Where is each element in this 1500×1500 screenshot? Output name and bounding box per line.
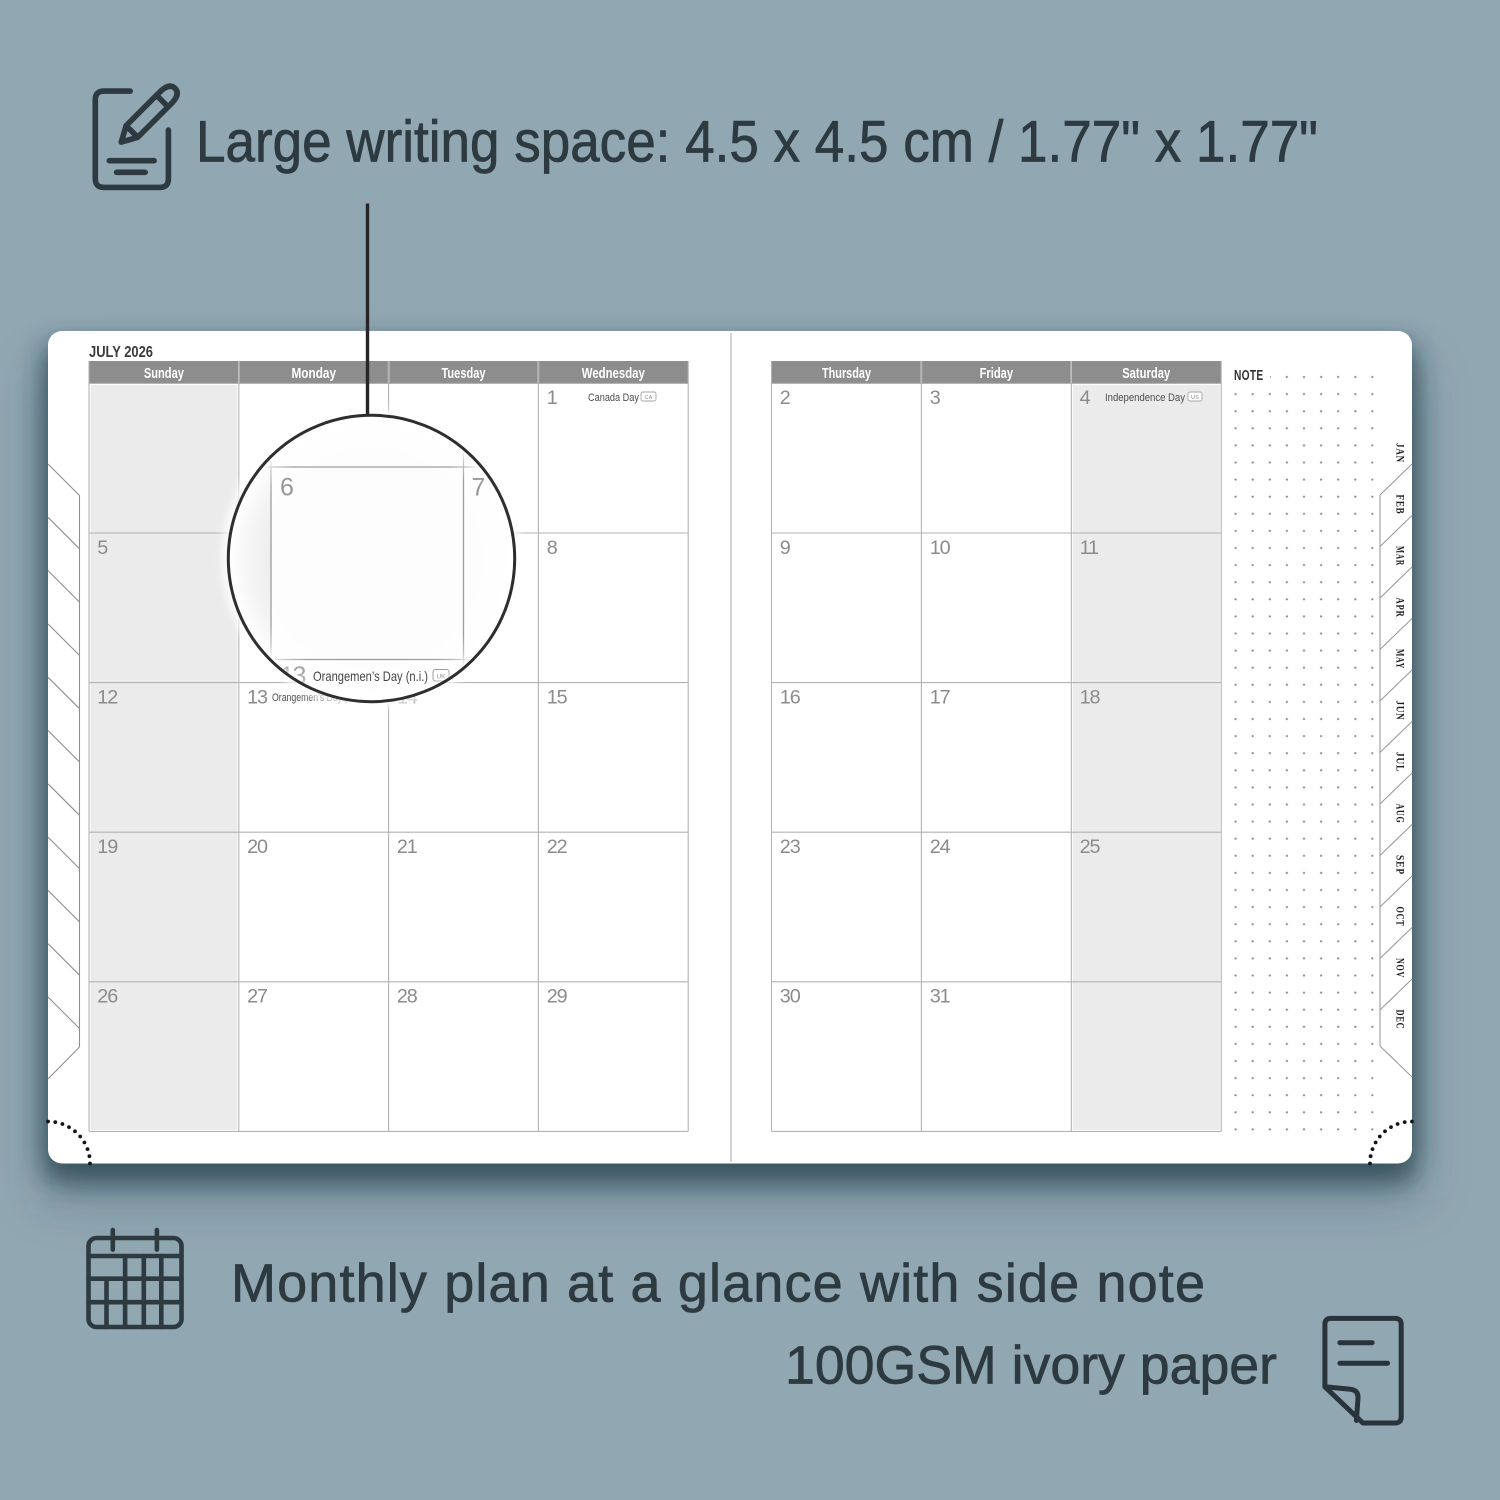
svg-text:Friday: Friday — [980, 365, 1014, 382]
svg-text:22: 22 — [547, 836, 567, 858]
svg-text:APR: APR — [1394, 598, 1406, 618]
svg-text:OCT: OCT — [1394, 907, 1406, 927]
svg-text:FEB: FEB — [1394, 495, 1406, 515]
svg-text:Orangemen’s Day (n.i.): Orangemen’s Day (n.i.) — [313, 668, 428, 684]
svg-text:JAN: JAN — [1394, 443, 1406, 463]
svg-text:28: 28 — [397, 986, 418, 1008]
svg-text:2: 2 — [780, 387, 790, 409]
svg-text:NOV: NOV — [1394, 958, 1406, 978]
svg-text:30: 30 — [780, 986, 801, 1008]
svg-text:100GSM ivory paper: 100GSM ivory paper — [785, 1336, 1277, 1396]
svg-text:17: 17 — [930, 686, 950, 708]
svg-text:9: 9 — [780, 537, 791, 559]
svg-text:21: 21 — [397, 836, 418, 858]
svg-text:JUN: JUN — [1394, 701, 1406, 721]
svg-text:Tuesday: Tuesday — [442, 365, 486, 382]
svg-text:7: 7 — [472, 474, 486, 502]
svg-text:19: 19 — [97, 836, 118, 858]
svg-text:8: 8 — [547, 537, 558, 559]
svg-text:DEC: DEC — [1394, 1010, 1406, 1030]
svg-text:26: 26 — [97, 986, 118, 1008]
svg-text:Monthly plan at a glance with: Monthly plan at a glance with side note — [231, 1254, 1205, 1314]
svg-text:25: 25 — [1080, 836, 1101, 858]
svg-text:15: 15 — [547, 686, 568, 708]
svg-text:12: 12 — [97, 686, 117, 708]
svg-text:5: 5 — [97, 537, 108, 559]
svg-text:JULY 2026: JULY 2026 — [89, 344, 153, 361]
svg-text:CA: CA — [644, 395, 652, 401]
svg-text:Canada Day: Canada Day — [588, 392, 639, 404]
svg-text:11: 11 — [1080, 537, 1099, 559]
svg-text:4: 4 — [1080, 387, 1091, 409]
svg-text:SEP: SEP — [1394, 855, 1406, 875]
svg-text:Thursday: Thursday — [822, 365, 871, 382]
svg-text:3: 3 — [930, 387, 941, 409]
svg-text:24: 24 — [930, 836, 951, 858]
svg-text:MAR: MAR — [1394, 546, 1406, 566]
svg-text:Large writing space: 4.5 x 4.5: Large writing space: 4.5 x 4.5 cm / 1.77… — [196, 110, 1318, 175]
svg-text:Independence Day: Independence Day — [1105, 392, 1185, 404]
svg-text:20: 20 — [247, 836, 268, 858]
svg-text:6: 6 — [280, 474, 294, 502]
svg-text:31: 31 — [930, 986, 951, 1008]
svg-text:1: 1 — [547, 387, 558, 409]
svg-text:Monday: Monday — [292, 365, 337, 382]
svg-text:27: 27 — [247, 986, 267, 1008]
svg-text:AUG: AUG — [1394, 804, 1406, 824]
svg-text:NOTE: NOTE — [1234, 368, 1264, 384]
svg-text:Sunday: Sunday — [144, 365, 184, 382]
svg-text:16: 16 — [780, 686, 801, 708]
svg-text:MAY: MAY — [1394, 649, 1406, 669]
svg-text:29: 29 — [547, 986, 568, 1008]
svg-text:18: 18 — [1080, 686, 1101, 708]
svg-text:Saturday: Saturday — [1122, 365, 1170, 382]
svg-text:JUL: JUL — [1394, 752, 1406, 772]
svg-text:Wednesday: Wednesday — [582, 365, 645, 382]
svg-text:US: US — [1191, 395, 1199, 401]
svg-text:10: 10 — [930, 537, 951, 559]
svg-text:23: 23 — [780, 836, 801, 858]
svg-text:13: 13 — [247, 686, 268, 708]
